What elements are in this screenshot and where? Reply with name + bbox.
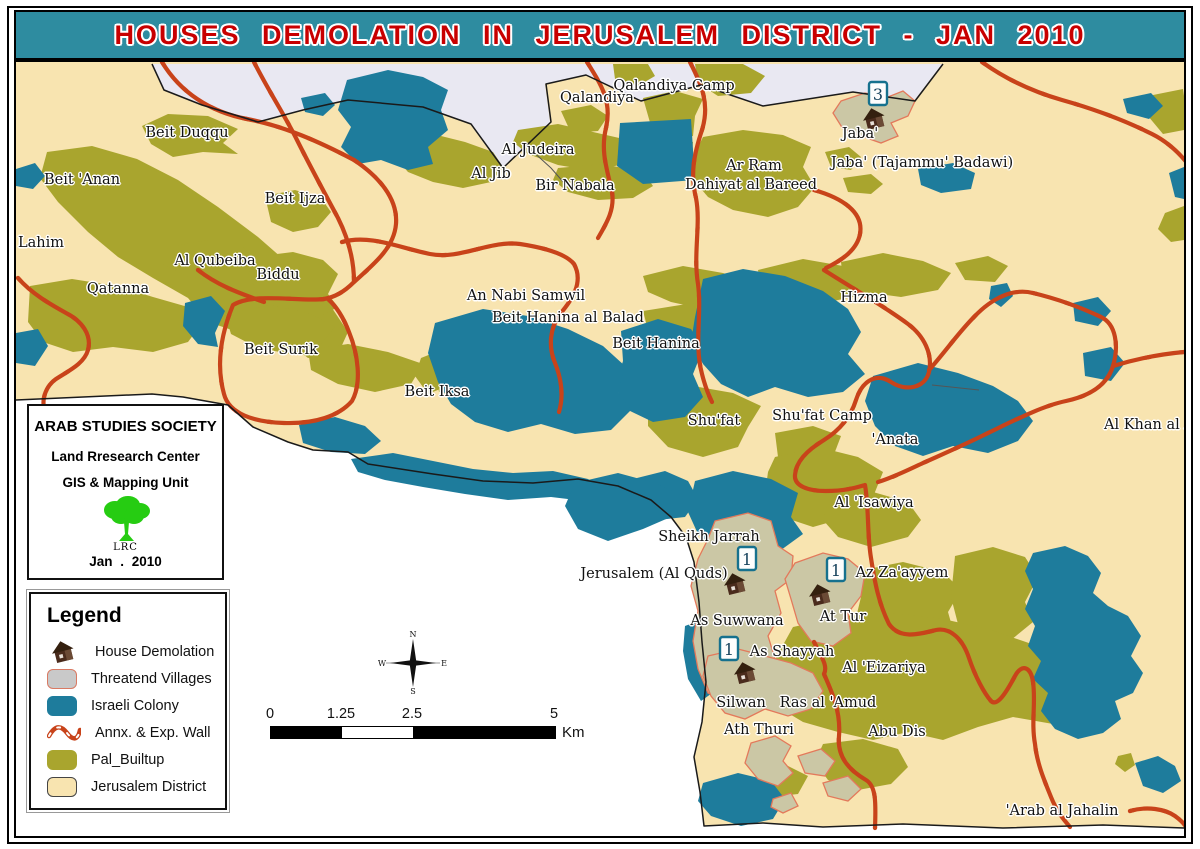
legend-item: Annx. & Exp. Wall [47,719,225,746]
scale-tick: 0 [266,706,274,722]
legend-swatch [47,777,77,797]
legend-box: Legend House DemolationThreatend Village… [29,592,227,810]
legend-item: Threatend Villages [47,665,225,692]
scale-segment [342,727,413,738]
legend-item: Israeli Colony [47,692,225,719]
legend-title: Legend [47,604,225,628]
legend-items: House DemolationThreatend VillagesIsrael… [47,638,225,800]
title-bar: HOUSES DEMOLATION IN JERUSALEM DISTRICT … [14,10,1186,60]
compass-s: S [410,687,415,695]
legend-item: House Demolation [47,638,225,665]
map-frame: 3 1 1 1 QalandiyaQalandiya CampBeit Duqq… [14,60,1186,838]
demolition-count: 3 [873,85,883,104]
scale-bar: 0 1.25 2.5 5 Km [270,706,590,739]
legend-item: Pal_Builtup [47,746,225,773]
legend-swatch [47,669,77,689]
legend-label: Threatend Villages [91,671,212,687]
scale-unit: Km [562,724,585,741]
scale-segment [271,727,342,738]
demolition-count: 1 [742,550,752,569]
map-title: HOUSES DEMOLATION IN JERUSALEM DISTRICT … [114,20,1085,51]
demolition-count: 1 [831,561,841,580]
scale-segment [413,727,555,738]
scale-tick: 2.5 [402,706,422,722]
legend-swatch [47,750,77,770]
credits-date: Jan . 2010 [89,554,162,569]
house-demolition-icon [47,640,81,664]
legend-label: Jerusalem District [91,779,206,795]
demolition-count: 1 [724,640,734,659]
credits-unit: GIS & Mapping Unit [63,475,189,490]
compass-n: N [410,630,417,639]
scale-segments [270,726,556,739]
legend-label: Annx. & Exp. Wall [95,725,211,741]
compass-e: E [441,659,447,668]
legend-label: House Demolation [95,644,214,660]
scale-tick: 1.25 [327,706,355,722]
credits-org: ARAB STUDIES SOCIETY [34,418,217,435]
scale-tick: 5 [550,706,558,722]
scale-ticks: 0 1.25 2.5 5 [270,706,590,724]
legend-label: Pal_Builtup [91,752,164,768]
wall-line-icon [47,721,81,745]
legend-item: Jerusalem District [47,773,225,800]
compass-rose: N S E W [378,629,448,695]
credits-logo: LRC [113,542,138,553]
credits-box: ARAB STUDIES SOCIETY Land Rresearch Cent… [27,404,224,580]
legend-swatch [47,696,77,716]
lrc-tree-icon [95,494,157,544]
credits-center: Land Rresearch Center [51,449,200,464]
page: HOUSES DEMOLATION IN JERUSALEM DISTRICT … [0,0,1200,849]
compass-w: W [378,659,387,668]
legend-label: Israeli Colony [91,698,179,714]
